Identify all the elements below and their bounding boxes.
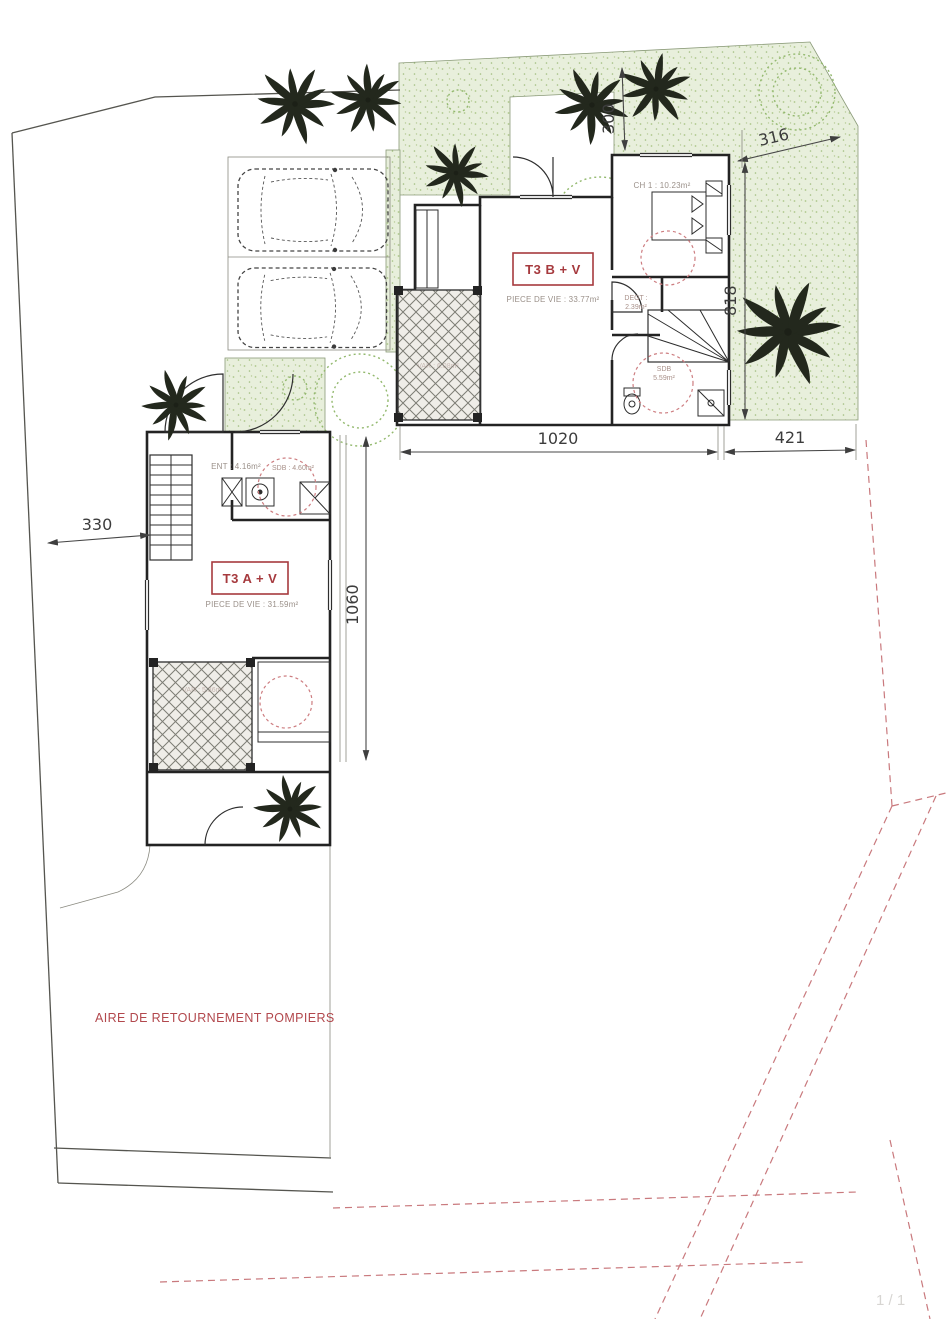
entrance-label: ENT : 4.16m² <box>211 462 261 471</box>
degagement-area: 2.39m² <box>625 304 647 311</box>
car-icon <box>238 267 387 349</box>
varangue-b-label: VAR : 6.08m² <box>417 363 459 370</box>
varangue-a <box>153 662 252 770</box>
courtyard-garden <box>225 358 325 432</box>
dim-1020: 1020 <box>538 429 579 448</box>
bathroom-b-label: SDB <box>657 366 672 373</box>
bathroom-b-area: 5.59m² <box>653 375 675 382</box>
varangue-a-label: VAR : 5.36m² <box>182 687 224 694</box>
fire-turning-area-label: AIRE DE RETOURNEMENT POMPIERS <box>95 1011 335 1025</box>
bedroom-label: CH 1 : 10.23m² <box>633 181 690 190</box>
dim-421: 421 <box>775 428 806 447</box>
sketch-tree-icon <box>332 372 388 428</box>
site-plan-drawing: T3 B + V PIECE DE VIE : 33.77m² CH 1 : 1… <box>0 0 946 1319</box>
dim-1060: 1060 <box>343 584 362 625</box>
degagement-label: DEGT : <box>624 295 647 302</box>
dim-300: 300 <box>599 103 618 134</box>
page-indicator: 1 / 1 <box>876 1292 905 1309</box>
dim-818: 818 <box>721 285 740 316</box>
unit-a-living-label: PIECE DE VIE : 31.59m² <box>206 600 299 609</box>
car-icon <box>238 168 388 252</box>
parking-area <box>228 157 390 350</box>
dim-330: 330 <box>82 515 113 534</box>
building-a: T3 A + V PIECE DE VIE : 31.59m² ENT : 4.… <box>146 374 332 845</box>
palm-tree-icon <box>249 58 341 151</box>
unit-b-living-label: PIECE DE VIE : 33.77m² <box>507 295 600 304</box>
site-plan-page: T3 B + V PIECE DE VIE : 33.77m² CH 1 : 1… <box>0 0 946 1319</box>
bathroom-a-label: SDB : 4.60m² <box>272 465 315 472</box>
varangue-b <box>398 290 480 420</box>
unit-a-label: T3 A + V <box>223 571 278 586</box>
unit-b-label: T3 B + V <box>525 262 581 277</box>
